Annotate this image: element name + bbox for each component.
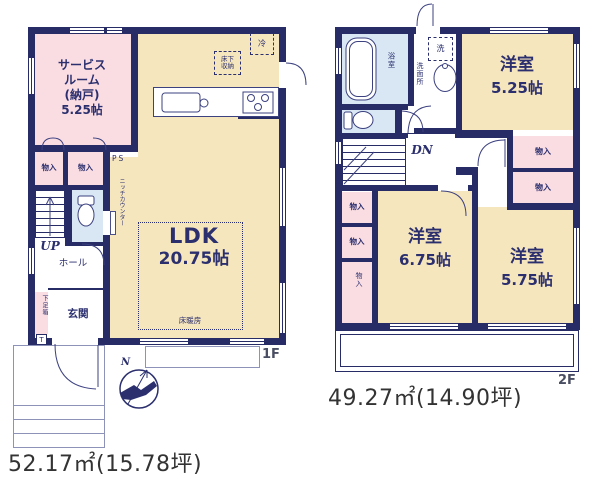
1f-area-text: 52.17㎡(15.78坪) (8, 446, 202, 477)
2f-toilet-room (342, 110, 395, 135)
wall (35, 185, 110, 190)
window (488, 323, 566, 330)
ldk-label: LDK (150, 224, 238, 248)
underfloor-storage-line2: 収納 (221, 62, 234, 70)
1f-toilet-room (72, 190, 103, 242)
compass-icon (120, 370, 158, 408)
window (230, 338, 264, 345)
ldk-size-label: 20.75帖 (140, 250, 248, 270)
service-room-line4: 5.25帖 (36, 103, 128, 118)
window (140, 338, 188, 345)
2f-floor-label: 2F (558, 373, 576, 388)
washer-space: 洗 (428, 37, 453, 61)
window (70, 27, 104, 34)
shoe-box-t-label: T (39, 336, 43, 344)
wall (456, 27, 462, 138)
closet-a-label: 物入 (35, 152, 63, 185)
balcony-inner-line (340, 334, 574, 367)
window (279, 283, 286, 333)
window (107, 27, 122, 34)
ps-label: PS (112, 155, 125, 164)
stairs-up-label: UP (34, 240, 66, 254)
window (28, 58, 35, 94)
wall (48, 288, 110, 290)
1f-stairs (35, 190, 65, 238)
wall (455, 130, 513, 138)
wall (507, 203, 573, 210)
compass-n-label: N (121, 357, 130, 369)
wall (103, 152, 110, 345)
2f-closet-a-label: 物入 (513, 136, 573, 168)
entrance-label: 玄関 (56, 307, 100, 321)
2f-stairs (342, 138, 406, 186)
underfloor-storage-label: 床下収納 (221, 56, 234, 71)
wall (342, 258, 372, 262)
refrigerator-space: 冷 (250, 33, 274, 55)
niche-counter-label: ニッチカウンター (113, 178, 124, 250)
2f-bathroom (342, 34, 408, 104)
door-opening (438, 185, 468, 191)
terrace (145, 346, 260, 368)
wall (28, 145, 138, 152)
2f-closet-e-label: 物入 (352, 272, 363, 314)
wall (28, 27, 286, 34)
room-575-label: 洋室 (499, 248, 555, 268)
wall (408, 128, 462, 134)
service-room-line3: (納戸) (36, 88, 128, 103)
washroom-label: 洗面所 (413, 62, 424, 120)
service-room-line2: ルーム (36, 73, 128, 88)
service-room-line1: サービス (36, 58, 128, 73)
wall (335, 133, 408, 138)
floor-heating-label: 床暖房 (163, 315, 217, 327)
porch-steps (14, 392, 104, 447)
window (573, 228, 580, 304)
2f-closet-b-label: 物入 (513, 172, 573, 203)
service-room-label: サービス ルーム (納戸) 5.25帖 (36, 58, 128, 124)
stairs-dn-label: DN (408, 144, 436, 158)
refrigerator-label: 冷 (258, 39, 266, 48)
room-525-size: 5.25帖 (487, 80, 547, 97)
kitchen-counter (153, 87, 279, 117)
closet-b-label: 物入 (68, 152, 103, 185)
window (490, 27, 548, 34)
underfloor-storage: 床下収納 (214, 51, 241, 75)
entrance-opening (52, 338, 98, 345)
window (573, 44, 580, 88)
2f-closet-d-label: 物入 (342, 227, 372, 258)
wall (472, 167, 478, 323)
room-525-label: 洋室 (489, 56, 545, 76)
hall-label: ホール (50, 258, 96, 271)
2f-area-text: 49.27㎡(14.90坪) (328, 380, 522, 412)
shoe-box-label: 下足箱 (37, 295, 47, 331)
door-opening (279, 62, 286, 88)
door-arc (417, 4, 432, 26)
window (335, 48, 342, 74)
wall (65, 185, 72, 246)
floor-plan-page: 冷 床下収納 サービス ルーム (納戸) 5.25帖 LDK 20.75帖 ホー… (0, 0, 600, 477)
room-675-label: 洋室 (397, 228, 453, 248)
window (335, 142, 342, 164)
washer-label: 洗 (437, 44, 445, 53)
shoe-box-t: T (36, 334, 47, 345)
2f-closet-c-label: 物入 (342, 192, 372, 223)
bathroom-label: 浴室 (384, 52, 395, 96)
room-675-size: 6.75帖 (395, 252, 455, 269)
window (279, 168, 286, 226)
wall (131, 27, 138, 152)
room-575-size: 5.75帖 (497, 272, 557, 289)
window (390, 323, 458, 330)
1f-floor-label: 1F (262, 347, 280, 362)
wall (372, 185, 378, 323)
wall (72, 242, 103, 246)
door-arc (286, 63, 306, 85)
niche-gap (103, 210, 110, 236)
door-opening (416, 27, 440, 34)
wall (395, 104, 402, 135)
